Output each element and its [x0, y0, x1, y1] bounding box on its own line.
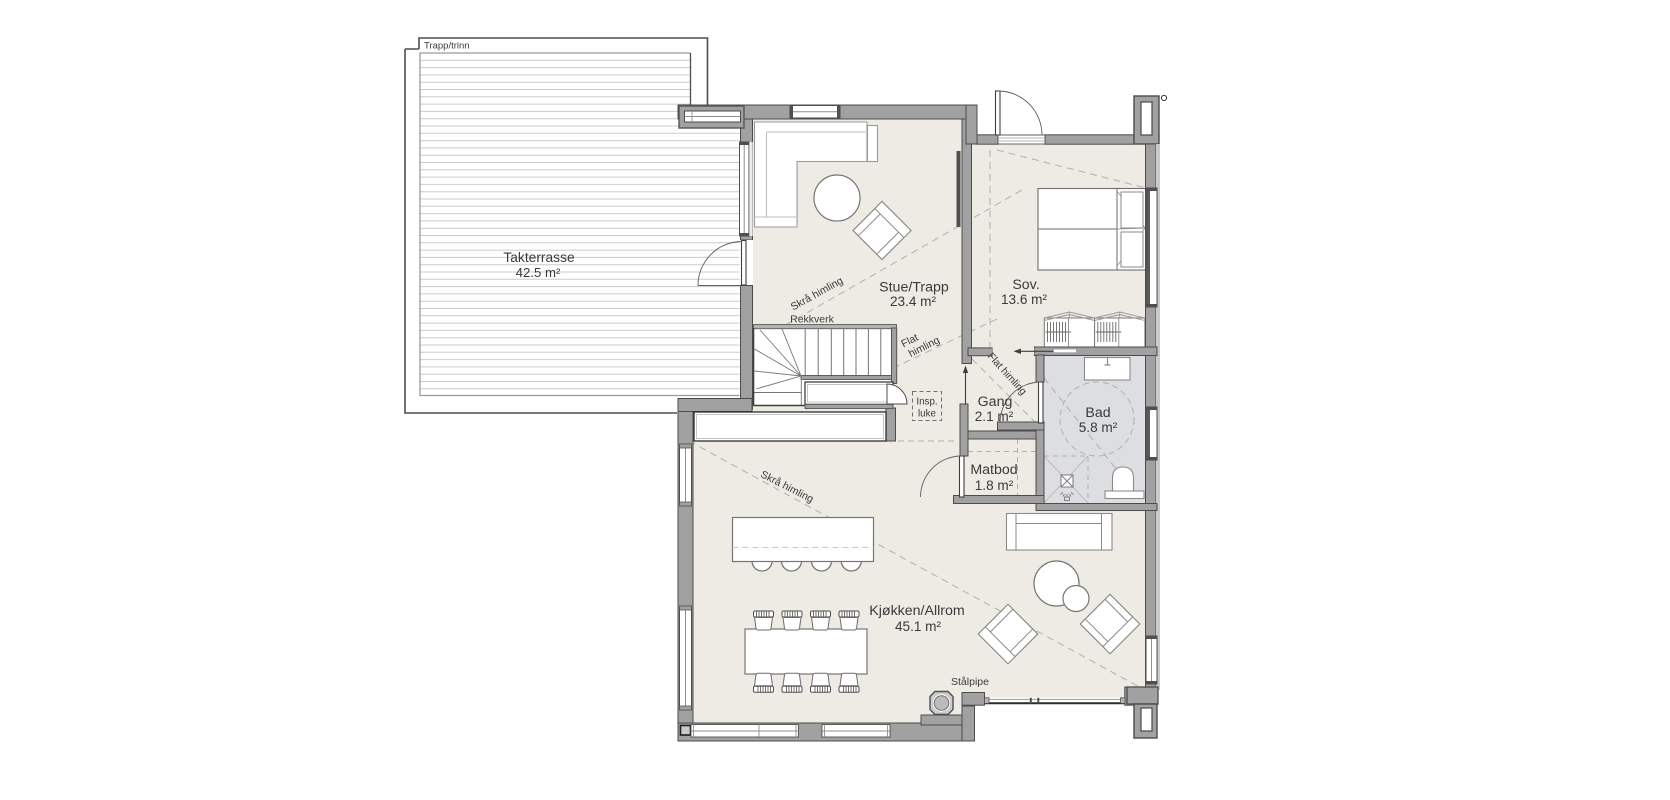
- svg-text:45.1 m²: 45.1 m²: [895, 619, 942, 634]
- svg-text:Stålpipe: Stålpipe: [951, 676, 989, 688]
- svg-text:Gang: Gang: [978, 394, 1013, 410]
- svg-text:Bad: Bad: [1085, 405, 1110, 421]
- svg-text:Matbod: Matbod: [970, 462, 1017, 478]
- svg-text:luke: luke: [918, 409, 937, 420]
- svg-text:23.4 m²: 23.4 m²: [890, 294, 937, 309]
- svg-text:Insp.: Insp.: [916, 397, 937, 408]
- svg-text:2.1 m²: 2.1 m²: [975, 409, 1014, 424]
- svg-text:Rekkverk: Rekkverk: [790, 314, 835, 326]
- svg-text:Sov.: Sov.: [1012, 277, 1039, 293]
- svg-text:Takterrasse: Takterrasse: [503, 250, 575, 265]
- svg-text:13.6 m²: 13.6 m²: [1001, 292, 1048, 307]
- svg-text:42.5 m²: 42.5 m²: [516, 265, 561, 280]
- svg-text:1.8 m²: 1.8 m²: [975, 478, 1014, 493]
- svg-text:Kjøkken/Allrom: Kjøkken/Allrom: [869, 603, 964, 619]
- svg-text:5.8 m²: 5.8 m²: [1079, 420, 1118, 435]
- svg-text:Trapp/trinn: Trapp/trinn: [424, 41, 470, 52]
